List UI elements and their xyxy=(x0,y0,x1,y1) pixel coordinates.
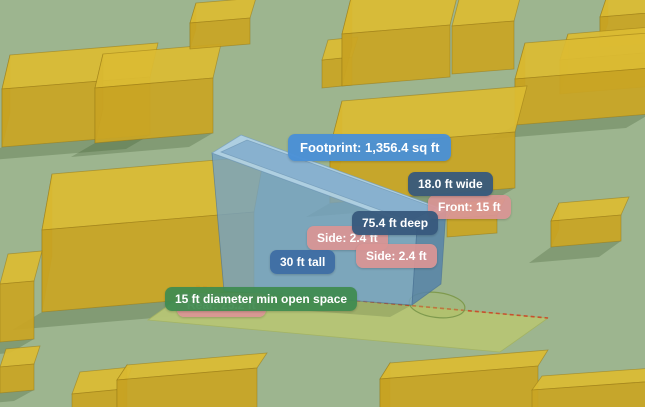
3d-zoning-viewer[interactable]: Footprint: 1,356.4 sq ft 18.0 ft wide Fr… xyxy=(0,0,645,407)
yellow-building[interactable] xyxy=(0,346,40,393)
footprint-badge: Footprint: 1,356.4 sq ft xyxy=(288,134,451,161)
depth-badge: 75.4 ft deep xyxy=(352,211,438,235)
yellow-building[interactable] xyxy=(551,197,629,247)
scene-canvas[interactable] xyxy=(0,0,645,407)
yellow-building[interactable] xyxy=(452,0,524,74)
yellow-building[interactable] xyxy=(190,0,256,49)
yellow-building[interactable] xyxy=(95,44,221,143)
yellow-building[interactable] xyxy=(342,0,460,86)
side-setback-badge-right: Side: 2.4 ft xyxy=(356,244,437,268)
open-space-badge: 15 ft diameter min open space xyxy=(165,287,357,311)
yellow-building[interactable] xyxy=(515,32,645,125)
front-setback-badge: Front: 15 ft xyxy=(428,195,511,219)
height-badge: 30 ft tall xyxy=(270,250,335,274)
width-badge: 18.0 ft wide xyxy=(408,172,493,196)
